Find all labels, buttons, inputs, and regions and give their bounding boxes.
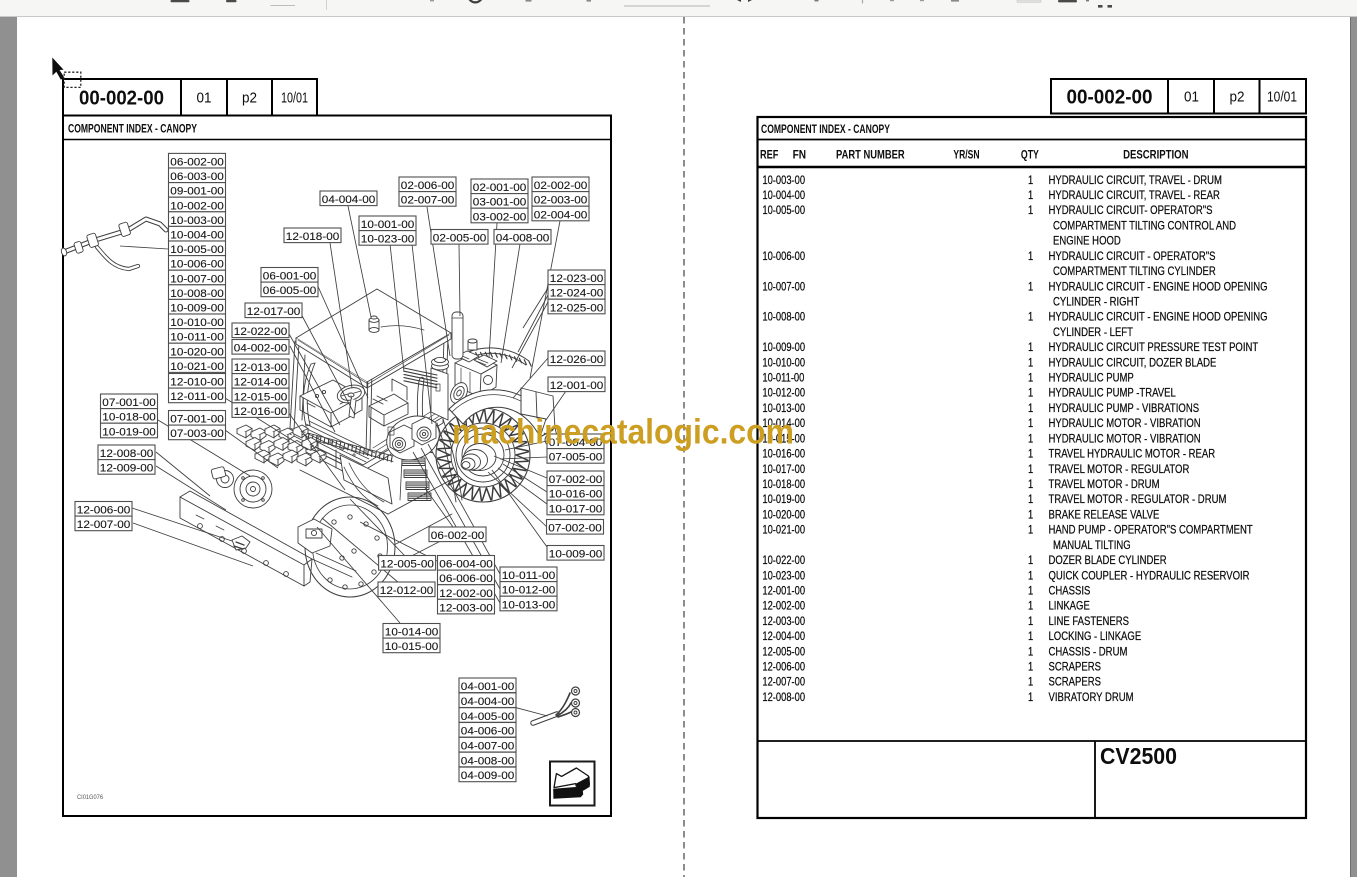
svg-text:12-025-00: 12-025-00	[550, 302, 604, 314]
svg-text:07-002-00: 07-002-00	[548, 523, 602, 535]
svg-text:CHASSIS: CHASSIS	[1049, 585, 1091, 598]
svg-text:10-015-00: 10-015-00	[385, 641, 439, 653]
svg-text:HYDRAULIC CIRCUIT- OPERATOR"S: HYDRAULIC CIRCUIT- OPERATOR"S	[1049, 204, 1213, 217]
svg-text:HYDRAULIC CIRCUIT, DOZER BLADE: HYDRAULIC CIRCUIT, DOZER BLADE	[1049, 356, 1217, 369]
svg-text:12-002-00: 12-002-00	[439, 588, 493, 600]
svg-text:06-006-00: 06-006-00	[439, 573, 493, 585]
svg-text:02-005-00: 02-005-00	[433, 233, 487, 245]
svg-text:CV2500: CV2500	[1100, 743, 1177, 769]
svg-text:04-002-00: 04-002-00	[234, 343, 287, 355]
svg-text:02-007-00: 02-007-00	[401, 195, 455, 207]
svg-text:12-006-00: 12-006-00	[762, 660, 805, 673]
svg-text:HYDRAULIC CIRCUIT, TRAVEL - DR: HYDRAULIC CIRCUIT, TRAVEL - DRUM	[1049, 174, 1222, 187]
svg-text:10-003-00: 10-003-00	[762, 174, 805, 187]
svg-text:06-005-00: 06-005-00	[263, 285, 317, 297]
svg-text:07-001-00: 07-001-00	[102, 397, 156, 409]
svg-text:TRAVEL HYDRAULIC MOTOR - REAR: TRAVEL HYDRAULIC MOTOR - REAR	[1049, 448, 1216, 461]
svg-text:p2: p2	[242, 91, 257, 107]
svg-text:10-009-00: 10-009-00	[549, 549, 603, 561]
svg-text:1: 1	[1028, 204, 1033, 217]
svg-text:10-021-00: 10-021-00	[762, 524, 805, 537]
svg-text:1: 1	[1028, 630, 1033, 643]
svg-text:10-018-00: 10-018-00	[102, 412, 156, 424]
svg-text:12-012-00: 12-012-00	[380, 585, 434, 597]
svg-text:12-008-00: 12-008-00	[762, 691, 805, 704]
svg-text:1: 1	[1028, 356, 1033, 369]
svg-text:ENGINE HOOD: ENGINE HOOD	[1053, 235, 1121, 248]
svg-text:12-015-00: 12-015-00	[234, 391, 287, 403]
svg-text:01: 01	[197, 91, 212, 107]
svg-text:1: 1	[1028, 676, 1033, 689]
svg-text:p2: p2	[1230, 90, 1245, 106]
svg-text:04-001-00: 04-001-00	[461, 681, 515, 693]
svg-text:00-002-00: 00-002-00	[1067, 86, 1153, 109]
svg-text:10-021-00: 10-021-00	[170, 361, 224, 373]
svg-text:06-002-00: 06-002-00	[431, 530, 485, 542]
svg-text:1: 1	[1028, 311, 1033, 324]
svg-text:12-001-00: 12-001-00	[550, 380, 604, 392]
svg-text:10/01: 10/01	[281, 91, 308, 107]
svg-text:VIBRATORY DRUM: VIBRATORY DRUM	[1049, 691, 1134, 704]
svg-text:12-005-00: 12-005-00	[380, 559, 434, 571]
svg-text:CYLINDER - RIGHT: CYLINDER - RIGHT	[1053, 296, 1140, 309]
svg-text:COMPONENT INDEX - CANOPY: COMPONENT INDEX - CANOPY	[68, 122, 197, 136]
svg-text:02-002-00: 02-002-00	[534, 180, 588, 192]
svg-text:12-026-00: 12-026-00	[550, 354, 604, 366]
svg-text:1: 1	[1028, 402, 1033, 415]
svg-text:10-004-00: 10-004-00	[762, 189, 805, 202]
svg-text:1: 1	[1028, 432, 1033, 445]
svg-text:MANUAL TILTING: MANUAL TILTING	[1053, 539, 1131, 552]
svg-text:12-018-00: 12-018-00	[286, 231, 340, 243]
svg-text:TRAVEL MOTOR - REGULATOR: TRAVEL MOTOR - REGULATOR	[1049, 463, 1190, 476]
svg-text:04-008-00: 04-008-00	[496, 233, 550, 245]
svg-text:10-020-00: 10-020-00	[762, 508, 805, 521]
svg-text:10-017-00: 10-017-00	[762, 463, 805, 476]
svg-text:CYLINDER - LEFT: CYLINDER - LEFT	[1053, 326, 1133, 339]
svg-text:10-002-00: 10-002-00	[170, 200, 224, 212]
svg-text:1: 1	[1028, 174, 1033, 187]
svg-text:12-003-00: 12-003-00	[439, 602, 493, 614]
svg-text:10-023-00: 10-023-00	[361, 234, 415, 246]
svg-text:DOZER BLADE CYLINDER: DOZER BLADE CYLINDER	[1049, 554, 1167, 567]
svg-text:12-007-00: 12-007-00	[762, 676, 805, 689]
svg-text:BRAKE RELEASE VALVE: BRAKE RELEASE VALVE	[1049, 508, 1160, 521]
svg-text:02-006-00: 02-006-00	[401, 180, 455, 192]
svg-text:12-008-00: 12-008-00	[100, 448, 154, 460]
svg-text:12-014-00: 12-014-00	[234, 377, 287, 389]
svg-text:10-023-00: 10-023-00	[762, 569, 805, 582]
svg-text:10-001-00: 10-001-00	[361, 219, 415, 231]
svg-text:1: 1	[1028, 554, 1033, 567]
svg-text:FN: FN	[793, 148, 807, 162]
svg-text:03-002-00: 03-002-00	[473, 211, 527, 223]
svg-text:1: 1	[1028, 387, 1033, 400]
svg-text:HYDRAULIC MOTOR - VIBRATION: HYDRAULIC MOTOR - VIBRATION	[1049, 417, 1201, 430]
svg-text:12-023-00: 12-023-00	[550, 273, 604, 285]
svg-text:1: 1	[1028, 584, 1033, 597]
svg-text:10-008-00: 10-008-00	[762, 311, 805, 324]
svg-text:1: 1	[1028, 189, 1033, 202]
svg-text:12-009-00: 12-009-00	[100, 463, 154, 475]
svg-text:12-002-00: 12-002-00	[762, 600, 805, 613]
svg-text:1: 1	[1028, 478, 1033, 491]
svg-text:1: 1	[1028, 615, 1033, 628]
svg-text:REF: REF	[760, 148, 778, 162]
svg-text:HYDRAULIC PUMP: HYDRAULIC PUMP	[1049, 372, 1134, 385]
svg-text:YR/SN: YR/SN	[953, 148, 979, 162]
svg-text:1: 1	[1028, 280, 1033, 293]
svg-text:10-007-00: 10-007-00	[762, 280, 805, 293]
svg-text:10-005-00: 10-005-00	[762, 204, 805, 217]
svg-text:10-011-00: 10-011-00	[762, 371, 804, 384]
svg-text:06-002-00: 06-002-00	[170, 157, 224, 169]
svg-text:COMPARTMENT TILTING CYLINDER: COMPARTMENT TILTING CYLINDER	[1053, 265, 1216, 278]
svg-text:CI01G076: CI01G076	[77, 794, 103, 801]
svg-text:10-003-00: 10-003-00	[170, 215, 224, 227]
svg-text:06-003-00: 06-003-00	[170, 171, 224, 183]
svg-text:10/01: 10/01	[1267, 90, 1297, 106]
svg-text:1: 1	[1028, 508, 1033, 521]
svg-text:10-011-00: 10-011-00	[170, 332, 224, 344]
svg-text:03-001-00: 03-001-00	[473, 197, 527, 209]
svg-text:02-004-00: 02-004-00	[534, 209, 588, 221]
svg-text:10-006-00: 10-006-00	[762, 250, 805, 263]
svg-text:10-013-00: 10-013-00	[502, 599, 556, 611]
svg-text:HYDRAULIC CIRCUIT, TRAVEL - RE: HYDRAULIC CIRCUIT, TRAVEL - REAR	[1049, 189, 1221, 202]
svg-text:1: 1	[1028, 600, 1033, 613]
svg-text:TRAVEL MOTOR - REGULATOR - DRU: TRAVEL MOTOR - REGULATOR - DRUM	[1049, 493, 1227, 506]
svg-text:10-017-00: 10-017-00	[549, 503, 603, 515]
svg-text:06-001-00: 06-001-00	[263, 271, 317, 283]
svg-text:10-011-00: 10-011-00	[502, 570, 556, 582]
svg-text:10-018-00: 10-018-00	[762, 478, 805, 491]
svg-text:04-007-00: 04-007-00	[461, 741, 515, 753]
svg-text:00-002-00: 00-002-00	[79, 87, 164, 110]
svg-text:HYDRAULIC CIRCUIT PRESSURE TES: HYDRAULIC CIRCUIT PRESSURE TEST POINT	[1049, 341, 1259, 354]
svg-text:12-005-00: 12-005-00	[762, 645, 805, 658]
svg-text:10-009-00: 10-009-00	[170, 303, 224, 315]
svg-text:HYDRAULIC MOTOR - VIBRATION: HYDRAULIC MOTOR - VIBRATION	[1049, 432, 1201, 445]
svg-text:10-007-00: 10-007-00	[170, 273, 224, 285]
svg-text:QUICK COUPLER - HYDRAULIC RESE: QUICK COUPLER - HYDRAULIC RESERVOIR	[1049, 569, 1250, 582]
svg-text:1: 1	[1028, 691, 1033, 704]
svg-text:10-012-00: 10-012-00	[502, 585, 556, 597]
svg-text:10-019-00: 10-019-00	[102, 426, 156, 438]
svg-text:PART NUMBER: PART NUMBER	[836, 148, 905, 162]
svg-text:12-016-00: 12-016-00	[234, 406, 287, 418]
svg-text:CHASSIS - DRUM: CHASSIS - DRUM	[1049, 645, 1128, 658]
svg-text:12-007-00: 12-007-00	[77, 519, 131, 531]
svg-text:10-016-00: 10-016-00	[549, 489, 603, 501]
svg-text:10-014-00: 10-014-00	[385, 627, 439, 639]
svg-text:1: 1	[1028, 463, 1033, 476]
svg-text:10-020-00: 10-020-00	[170, 346, 224, 358]
svg-text:12-022-00: 12-022-00	[234, 326, 287, 338]
svg-text:06-004-00: 06-004-00	[439, 559, 493, 571]
svg-text:04-004-00: 04-004-00	[461, 696, 515, 708]
svg-text:04-005-00: 04-005-00	[461, 711, 515, 723]
svg-text:12-001-00: 12-001-00	[762, 584, 805, 597]
svg-text:10-010-00: 10-010-00	[170, 317, 224, 329]
svg-text:12-010-00: 12-010-00	[170, 377, 224, 389]
svg-text:12-006-00: 12-006-00	[77, 505, 131, 517]
svg-text:HYDRAULIC CIRCUIT - OPERATOR"S: HYDRAULIC CIRCUIT - OPERATOR"S	[1049, 250, 1216, 263]
svg-text:10-019-00: 10-019-00	[762, 493, 805, 506]
svg-text:1: 1	[1028, 417, 1033, 430]
svg-text:04-009-00: 04-009-00	[461, 770, 515, 782]
svg-text:04-006-00: 04-006-00	[461, 726, 515, 738]
svg-text:12-024-00: 12-024-00	[550, 288, 604, 300]
svg-text:machinecatalogic.com: machinecatalogic.com	[452, 413, 794, 452]
svg-text:04-008-00: 04-008-00	[461, 755, 515, 767]
svg-text:1: 1	[1028, 524, 1033, 537]
svg-text:12-003-00: 12-003-00	[762, 615, 805, 628]
svg-text:LINKAGE: LINKAGE	[1049, 600, 1090, 613]
svg-text:07-005-00: 07-005-00	[549, 452, 603, 464]
svg-text:10-022-00: 10-022-00	[762, 554, 805, 567]
svg-text:SCRAPERS: SCRAPERS	[1049, 661, 1101, 674]
svg-text:1: 1	[1028, 371, 1033, 384]
svg-text:07-002-00: 07-002-00	[549, 474, 603, 486]
svg-text:10-010-00: 10-010-00	[762, 356, 805, 369]
svg-text:HYDRAULIC PUMP -TRAVEL: HYDRAULIC PUMP -TRAVEL	[1049, 387, 1176, 400]
svg-text:HAND PUMP - OPERATOR"S COMPART: HAND PUMP - OPERATOR"S COMPARTMENT	[1049, 524, 1254, 537]
svg-text:02-003-00: 02-003-00	[534, 195, 588, 207]
svg-text:QTY: QTY	[1021, 148, 1039, 162]
svg-text:12-013-00: 12-013-00	[234, 362, 287, 374]
svg-text:1: 1	[1028, 448, 1033, 461]
svg-text:12-011-00: 12-011-00	[170, 391, 224, 403]
svg-text:1: 1	[1028, 569, 1033, 582]
svg-text:1: 1	[1028, 493, 1033, 506]
svg-text:12-004-00: 12-004-00	[762, 630, 805, 643]
svg-text:01: 01	[1184, 90, 1199, 106]
svg-text:10-009-00: 10-009-00	[762, 341, 805, 354]
svg-text:1: 1	[1028, 660, 1033, 673]
svg-text:10-004-00: 10-004-00	[170, 230, 224, 242]
svg-text:LINE FASTENERS: LINE FASTENERS	[1049, 615, 1129, 628]
svg-text:10-012-00: 10-012-00	[762, 387, 805, 400]
svg-text:HYDRAULIC CIRCUIT - ENGINE HOO: HYDRAULIC CIRCUIT - ENGINE HOOD OPENING	[1049, 311, 1268, 324]
svg-text:1: 1	[1028, 645, 1033, 658]
svg-text:04-004-00: 04-004-00	[322, 194, 376, 206]
svg-text:1: 1	[1028, 250, 1033, 263]
svg-text:02-001-00: 02-001-00	[473, 182, 527, 194]
svg-text:07-003-00: 07-003-00	[170, 428, 224, 440]
svg-text:SCRAPERS: SCRAPERS	[1049, 676, 1101, 689]
svg-text:COMPARTMENT TILTING CONTROL AN: COMPARTMENT TILTING CONTROL AND	[1053, 219, 1236, 232]
svg-text:10-006-00: 10-006-00	[170, 259, 224, 271]
svg-text:1: 1	[1028, 341, 1033, 354]
svg-text:DESCRIPTION: DESCRIPTION	[1123, 148, 1188, 162]
svg-text:10-008-00: 10-008-00	[170, 288, 224, 300]
svg-text:TRAVEL MOTOR - DRUM: TRAVEL MOTOR - DRUM	[1049, 478, 1160, 491]
svg-text:10-005-00: 10-005-00	[170, 244, 224, 256]
svg-text:09-001-00: 09-001-00	[170, 186, 224, 198]
svg-text:COMPONENT INDEX - CANOPY: COMPONENT INDEX - CANOPY	[761, 122, 890, 136]
svg-text:HYDRAULIC CIRCUIT - ENGINE HOO: HYDRAULIC CIRCUIT - ENGINE HOOD OPENING	[1049, 280, 1268, 293]
svg-text:LOCKING - LINKAGE: LOCKING - LINKAGE	[1049, 630, 1142, 643]
svg-text:HYDRAULIC PUMP - VIBRATIONS: HYDRAULIC PUMP - VIBRATIONS	[1049, 402, 1200, 415]
svg-text:12-017-00: 12-017-00	[247, 306, 300, 318]
svg-text:07-001-00: 07-001-00	[170, 414, 224, 426]
